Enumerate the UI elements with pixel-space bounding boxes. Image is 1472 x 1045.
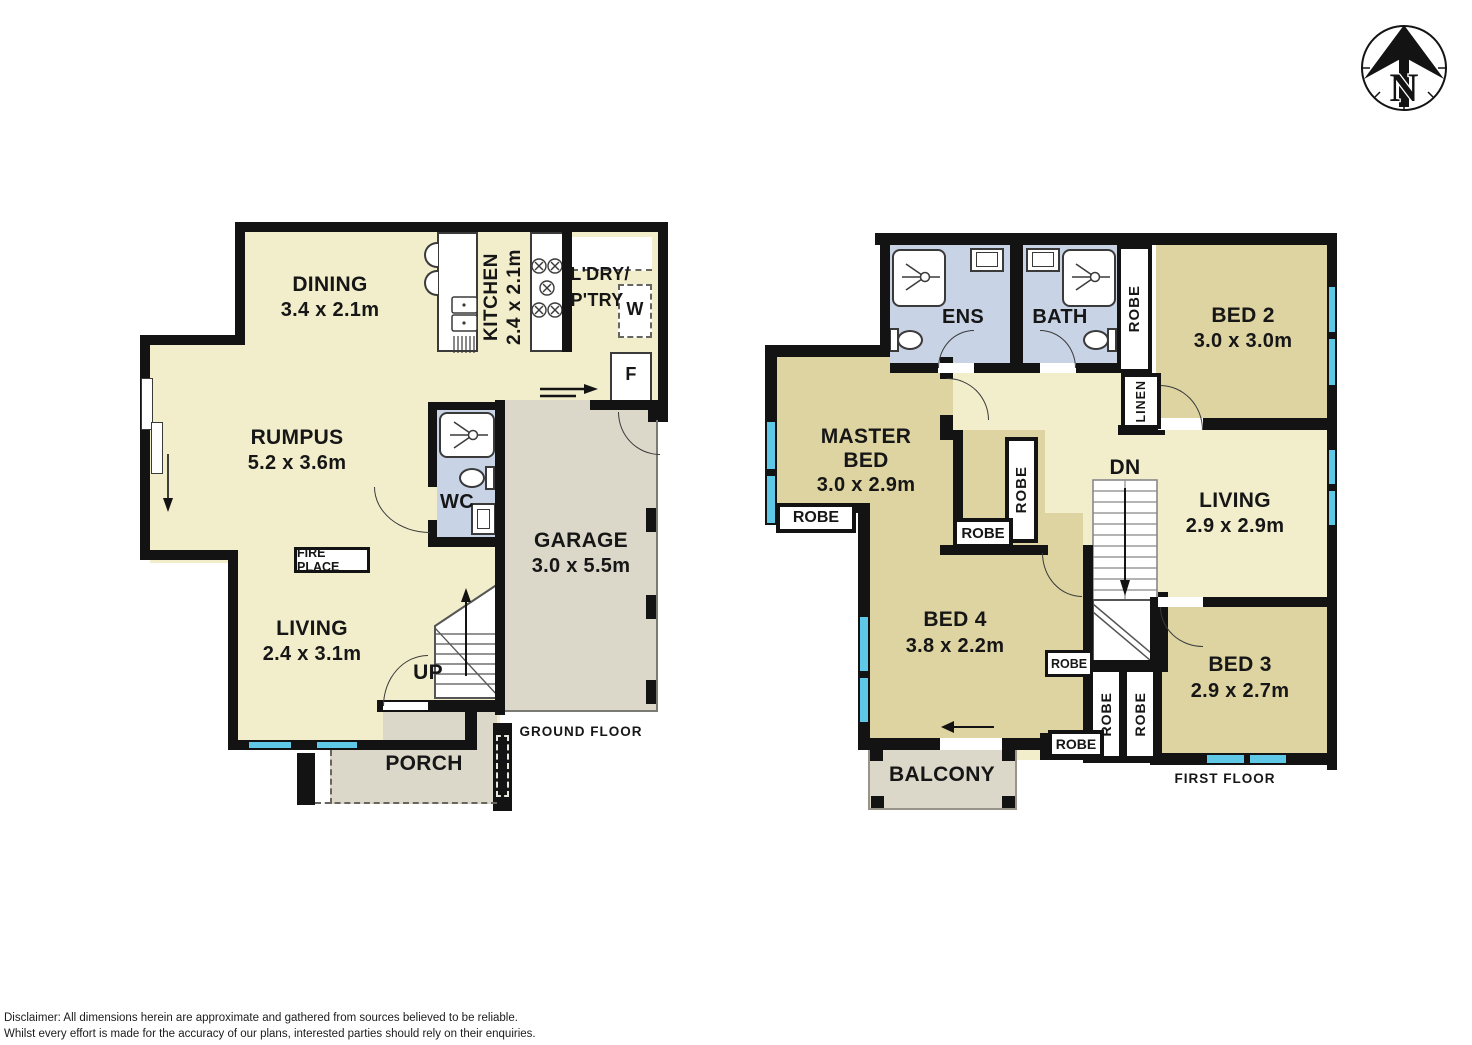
stairs-up-label: UP [413, 661, 443, 685]
wall [875, 233, 1337, 245]
wall [658, 222, 668, 410]
toilet-cistern-icon [485, 466, 495, 490]
toilet-icon [897, 330, 923, 350]
vanity-sink-bowl [976, 252, 998, 267]
wall [562, 222, 572, 352]
toilet-icon [459, 468, 485, 488]
balcony-door-opening [940, 738, 1002, 750]
room-dims-dining: 3.4 x 2.1m [281, 299, 380, 322]
room-label-wc: WC [440, 491, 474, 514]
balcony-pier [1002, 796, 1015, 808]
room-dims-living-gf: 2.4 x 3.1m [263, 643, 362, 666]
shower-head-icon [446, 418, 490, 452]
room-dims-bed2: 3.0 x 3.0m [1194, 330, 1293, 353]
garage-outline [656, 420, 658, 712]
north-compass-icon: N [1358, 22, 1450, 114]
garage-outline [505, 710, 657, 712]
compass-n-label: N [1390, 65, 1419, 110]
porch-dashed-edge [315, 802, 497, 804]
wall [140, 550, 238, 560]
room-label-ens: ENS [942, 306, 984, 329]
robe-strip: ROBE [1127, 672, 1153, 756]
room-label-bath: BATH [1032, 306, 1087, 329]
room-dims-living-ff: 2.9 x 2.9m [1186, 515, 1285, 538]
window [858, 615, 870, 673]
room-label-balcony: BALCONY [889, 763, 995, 787]
wall [228, 550, 238, 750]
room-label-garage: GARAGE [534, 529, 628, 553]
shower-head-icon [898, 260, 942, 294]
wall [1010, 245, 1023, 363]
linen-label: LINEN [1134, 380, 1148, 423]
wall [235, 232, 245, 345]
window [247, 740, 293, 750]
window [858, 676, 870, 724]
wall [1010, 738, 1046, 750]
disclaimer: Disclaimer: All dimensions herein are ap… [4, 1010, 536, 1042]
room-label-rumpus: RUMPUS [251, 426, 344, 450]
room-label-master: MASTER [821, 425, 911, 449]
linen-cupboard: LINEN [1121, 373, 1161, 429]
balcony-arrow-icon [940, 720, 996, 734]
floorplan-canvas: FIRE PLACE DINING 3.4 x 2.1m KITCHEN 2.4… [0, 0, 1472, 1045]
porch-pier-inset [496, 735, 509, 797]
room-dims-garage: 3.0 x 5.5m [532, 555, 631, 578]
room-label-bed2: BED 2 [1211, 304, 1274, 328]
window [1205, 753, 1246, 765]
wall [890, 363, 1117, 373]
room-dims-master: 3.0 x 2.9m [817, 474, 916, 497]
porch-pier [297, 753, 315, 805]
room-label-living-gf: LIVING [276, 617, 348, 641]
first-floor-label: FIRST FLOOR [1175, 771, 1276, 786]
ground-floor-label: GROUND FLOOR [520, 724, 643, 739]
robe-label: ROBE [1132, 692, 1148, 736]
window [1327, 448, 1337, 486]
room-label-bed3: BED 3 [1208, 653, 1271, 677]
porch-dashed-edge [330, 750, 332, 804]
toilet-icon [1083, 330, 1109, 350]
robe-bottom: ROBE [1048, 730, 1104, 758]
room-label-living-ff: LIVING [1199, 489, 1271, 513]
wall [428, 402, 437, 487]
room-label-bed4: BED 4 [923, 608, 986, 632]
balcony-pier [871, 796, 884, 808]
room-dims-kitchen: 2.4 x 2.1m [504, 236, 526, 358]
balcony-pier [870, 750, 883, 761]
room-label-dining: DINING [292, 273, 367, 297]
vanity-sink-bowl [1032, 252, 1054, 267]
shower-head-icon [1068, 260, 1112, 294]
fridge-label: F [625, 364, 636, 385]
wall [465, 700, 477, 750]
slide-arrow-icon [158, 452, 178, 514]
room-label-master-2: BED [843, 449, 888, 473]
wc-basin-bowl [477, 509, 490, 529]
kitchen-sink-icon [451, 296, 479, 356]
washer-label: W [626, 299, 643, 320]
wall [428, 537, 503, 547]
wall [140, 335, 245, 345]
robe-label: ROBE [1013, 466, 1030, 513]
toilet-cistern-icon [889, 328, 899, 352]
window [1327, 285, 1337, 334]
window [1248, 753, 1288, 765]
disclaimer-line1: Disclaimer: All dimensions herein are ap… [4, 1010, 536, 1026]
robe-bed2: ROBE [1117, 245, 1152, 373]
disclaimer-line2: Whilst every effort is made for the accu… [4, 1026, 536, 1042]
room-dims-bed3: 2.9 x 2.7m [1191, 680, 1290, 703]
wall [880, 233, 890, 357]
fireplace-label: FIRE PLACE [294, 547, 370, 573]
robe-label: ROBE [1126, 285, 1143, 332]
room-dims-bed4: 3.8 x 2.2m [906, 635, 1005, 658]
robe-closet: ROBE [953, 518, 1013, 548]
room-dims-rumpus: 5.2 x 3.6m [248, 452, 347, 475]
room-label-laundry: L'DRY/ [570, 264, 629, 285]
balcony-pier [1002, 750, 1015, 761]
wall [235, 222, 668, 232]
robe-master: ROBE [776, 503, 856, 533]
wall [495, 400, 505, 715]
window [765, 420, 777, 471]
wall [765, 345, 890, 357]
door-opening [1158, 597, 1203, 607]
stairs-down-label: DN [1110, 456, 1141, 480]
room-label-kitchen: KITCHEN [481, 240, 503, 355]
robe-small: ROBE [1045, 650, 1093, 677]
room-label-porch: PORCH [385, 752, 462, 776]
window [1327, 489, 1337, 527]
window [1327, 337, 1337, 387]
wall [428, 402, 503, 410]
toilet-cistern-icon [1107, 328, 1117, 352]
window [315, 740, 359, 750]
stove-icon [530, 256, 564, 322]
room-label-pantry: P'TRY [570, 290, 623, 311]
